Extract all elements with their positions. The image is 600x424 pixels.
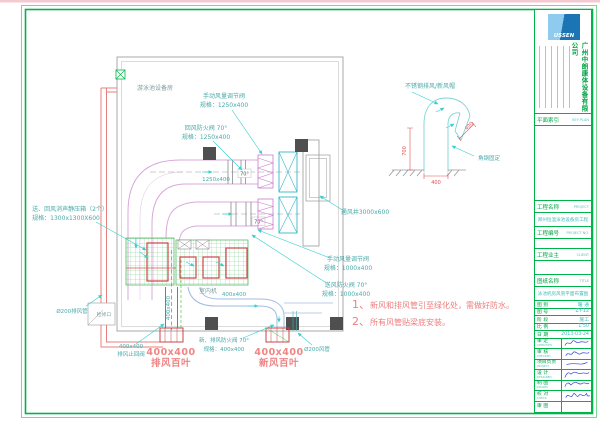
project-en: PROJECT (574, 205, 589, 209)
check-valve-line1: 400x400 (119, 344, 144, 350)
drawing-title-en: TITLE (580, 279, 589, 283)
duct-size-main-label: 1250x400 (202, 177, 230, 183)
sign-proof-en: CHECK (537, 397, 561, 400)
vent-cap-detail (389, 98, 476, 179)
vent-shaft (303, 140, 330, 246)
client-label: 工程业主 (537, 251, 559, 259)
manual-damper1-line1: 手动风量调节阀 (203, 92, 245, 100)
logo-text: USSEN (554, 33, 575, 40)
key-plan-row: 平面索引 KEY PLAN (535, 114, 591, 126)
fresh-louver-name: 新风百叶 (259, 357, 299, 369)
exhaust-louver-name: 排风百叶 (151, 357, 191, 369)
exhaust-louver (160, 328, 183, 342)
signature-proof (562, 391, 591, 401)
manual-damper1-line2: 规格：1250x400 (200, 101, 248, 109)
project-number-en: PROJECT NO. (566, 231, 589, 235)
note-2-text: 所有风管贴梁底安装。 (370, 317, 450, 327)
fresh-louver (266, 328, 289, 342)
project-number-label: 工程编号 (537, 229, 559, 237)
sign-row-designed: 设 计DESIGNED (535, 370, 591, 381)
detail-fix-label: 角钢固定 (478, 154, 501, 162)
bottom-fire-damper-line1: 新、排风防火阀 70° (199, 336, 249, 344)
plenum-line1: 送、回风消声静压箱（2个） (32, 205, 108, 213)
sign-checked-en: CHECKED (537, 355, 561, 358)
exhaust-louver-size: 400x400 (146, 347, 195, 358)
sign-row-review: 审 图 (535, 402, 591, 413)
sign-approved-en: APPROVED (537, 344, 561, 347)
indoor-unit-label: 室内机 (199, 287, 217, 295)
meta-scale-label: 比 例 (537, 323, 548, 330)
wall-marker-box (116, 70, 125, 79)
meta-scale-value: 1:50 (578, 324, 589, 329)
manual-damper2-line2: 规格：1000x400 (324, 264, 372, 272)
sign-row-approved: 审 定APPROVED (535, 339, 591, 350)
indoor-units (126, 238, 248, 285)
pipe-right-label: Ø200风管 (304, 345, 330, 353)
drawing-sheet: 70° 70° (0, 0, 600, 424)
project-number-row: 工程编号 PROJECT NO. (535, 227, 591, 239)
signature-checked (562, 349, 591, 359)
detail-dim-width: 400 (431, 180, 441, 186)
meta-stage-label: 阶 段 (537, 316, 548, 323)
detail-dim-height: 700 (402, 146, 408, 156)
signature-lead (562, 360, 591, 370)
title-block: USSEN 广州中朗康体设备有限公司 平面索引 KEY PLAN 工程名称 PR… (534, 9, 592, 413)
company-name: 广州中朗康体设备有限公司 (569, 42, 589, 113)
plan-canvas: 70° 70° (0, 0, 600, 424)
signature-designed (562, 370, 591, 380)
drawing-title-row: 图纸名称 TITLE (535, 275, 591, 287)
sign-drawn-en: DRAWN (537, 386, 561, 389)
fire-damper-70-tag-1: 70° (238, 169, 251, 178)
room-label: 游泳池设备房 (137, 84, 173, 92)
supply-fire-damper-line2: 规格：1000x400 (322, 290, 370, 298)
duct-400-h-label: 400x400 (222, 292, 247, 298)
bottom-fire-damper-line2: 规格：400x400 (204, 345, 245, 353)
signature-drawn (562, 381, 591, 391)
note-2-number: 2、 (352, 315, 370, 328)
pipe-left-label: Ø200排风管 (56, 307, 88, 315)
meta-number-label: 图 号 (537, 308, 548, 315)
vent-shaft-label: 通风井3000x600 (341, 208, 389, 216)
signature-review (562, 402, 591, 413)
meta-date-value: 2013-03-24 (561, 332, 589, 337)
project-number-value (535, 239, 591, 249)
meta-type-label: 图 别 (537, 301, 548, 308)
note-1-number: 1、 (352, 298, 370, 311)
meta-date-label: 日 期 (537, 331, 548, 338)
deg70-label-1: 70° (240, 172, 249, 178)
project-name-row: 工程名称 PROJECT (535, 201, 591, 213)
note-1-text: 新风和排风管引至绿化处，需做好防水。 (370, 300, 514, 310)
key-plan-box (535, 126, 591, 201)
project-label: 工程名称 (537, 203, 559, 211)
signature-approved (562, 339, 591, 349)
supply-fire-damper-line1: 送风防火阀 70° (325, 281, 368, 289)
company-header: USSEN 广州中朗康体设备有限公司 (535, 10, 591, 114)
meta-stage-value: 施工 (579, 316, 589, 323)
sign-row-proof: 校 对CHECK (535, 391, 591, 402)
client-value (535, 261, 591, 275)
sign-review-label: 审 图 (537, 404, 561, 409)
sign-row-drawn: 制 图DRAWN (535, 381, 591, 392)
client-row: 工程业主 CLIENT (535, 249, 591, 261)
company-fineprint (539, 46, 571, 108)
note-1: 1、新风和排风管引至绿化处，需做好防水。 (352, 298, 514, 311)
plenum-line2: 规格：1300x1300X600 (32, 214, 100, 222)
meta-number-value: ZY-12 (576, 309, 589, 314)
access-panel-label: 检修口 (97, 311, 112, 318)
return-fire-damper-line2: 规格：1250x400 (182, 133, 230, 141)
key-plan-en: KEY PLAN (572, 118, 589, 122)
access-panel: 检修口 (88, 303, 115, 325)
check-valve-line2: 排风止回阀 (117, 350, 145, 358)
manual-damper2-line1: 手动风量调节阀 (327, 255, 369, 263)
return-fire-damper-line1: 回风防火阀 70° (185, 124, 228, 132)
sign-lead-en: PROJECT (537, 365, 561, 368)
drawing-title-label: 图纸名称 (537, 277, 559, 285)
fresh-louver-size: 400x400 (254, 347, 303, 358)
duct-400-v-label: 400x400 (166, 295, 172, 320)
meta-type-value: 暖 通 (578, 301, 589, 308)
client-en: CLIENT (577, 253, 589, 257)
company-logo: USSEN (548, 14, 580, 40)
drawing-title-value: 泳池机房风管平面布置图 (535, 287, 591, 301)
note-2: 2、所有风管贴梁底安装。 (352, 315, 450, 328)
vent-cap-label: 不锈钢排风/新风帽 (405, 82, 455, 90)
key-plan-label: 平面索引 (537, 116, 559, 124)
sign-row-checked: 审 核CHECKED (535, 349, 591, 360)
sign-designed-en: DESIGNED (537, 376, 561, 379)
detail-dim-opening: 400 (464, 121, 475, 132)
project-value: 郑州恒温泳池设备房工程 (535, 213, 591, 227)
sign-row-lead: 项目负责PROJECT (535, 360, 591, 371)
